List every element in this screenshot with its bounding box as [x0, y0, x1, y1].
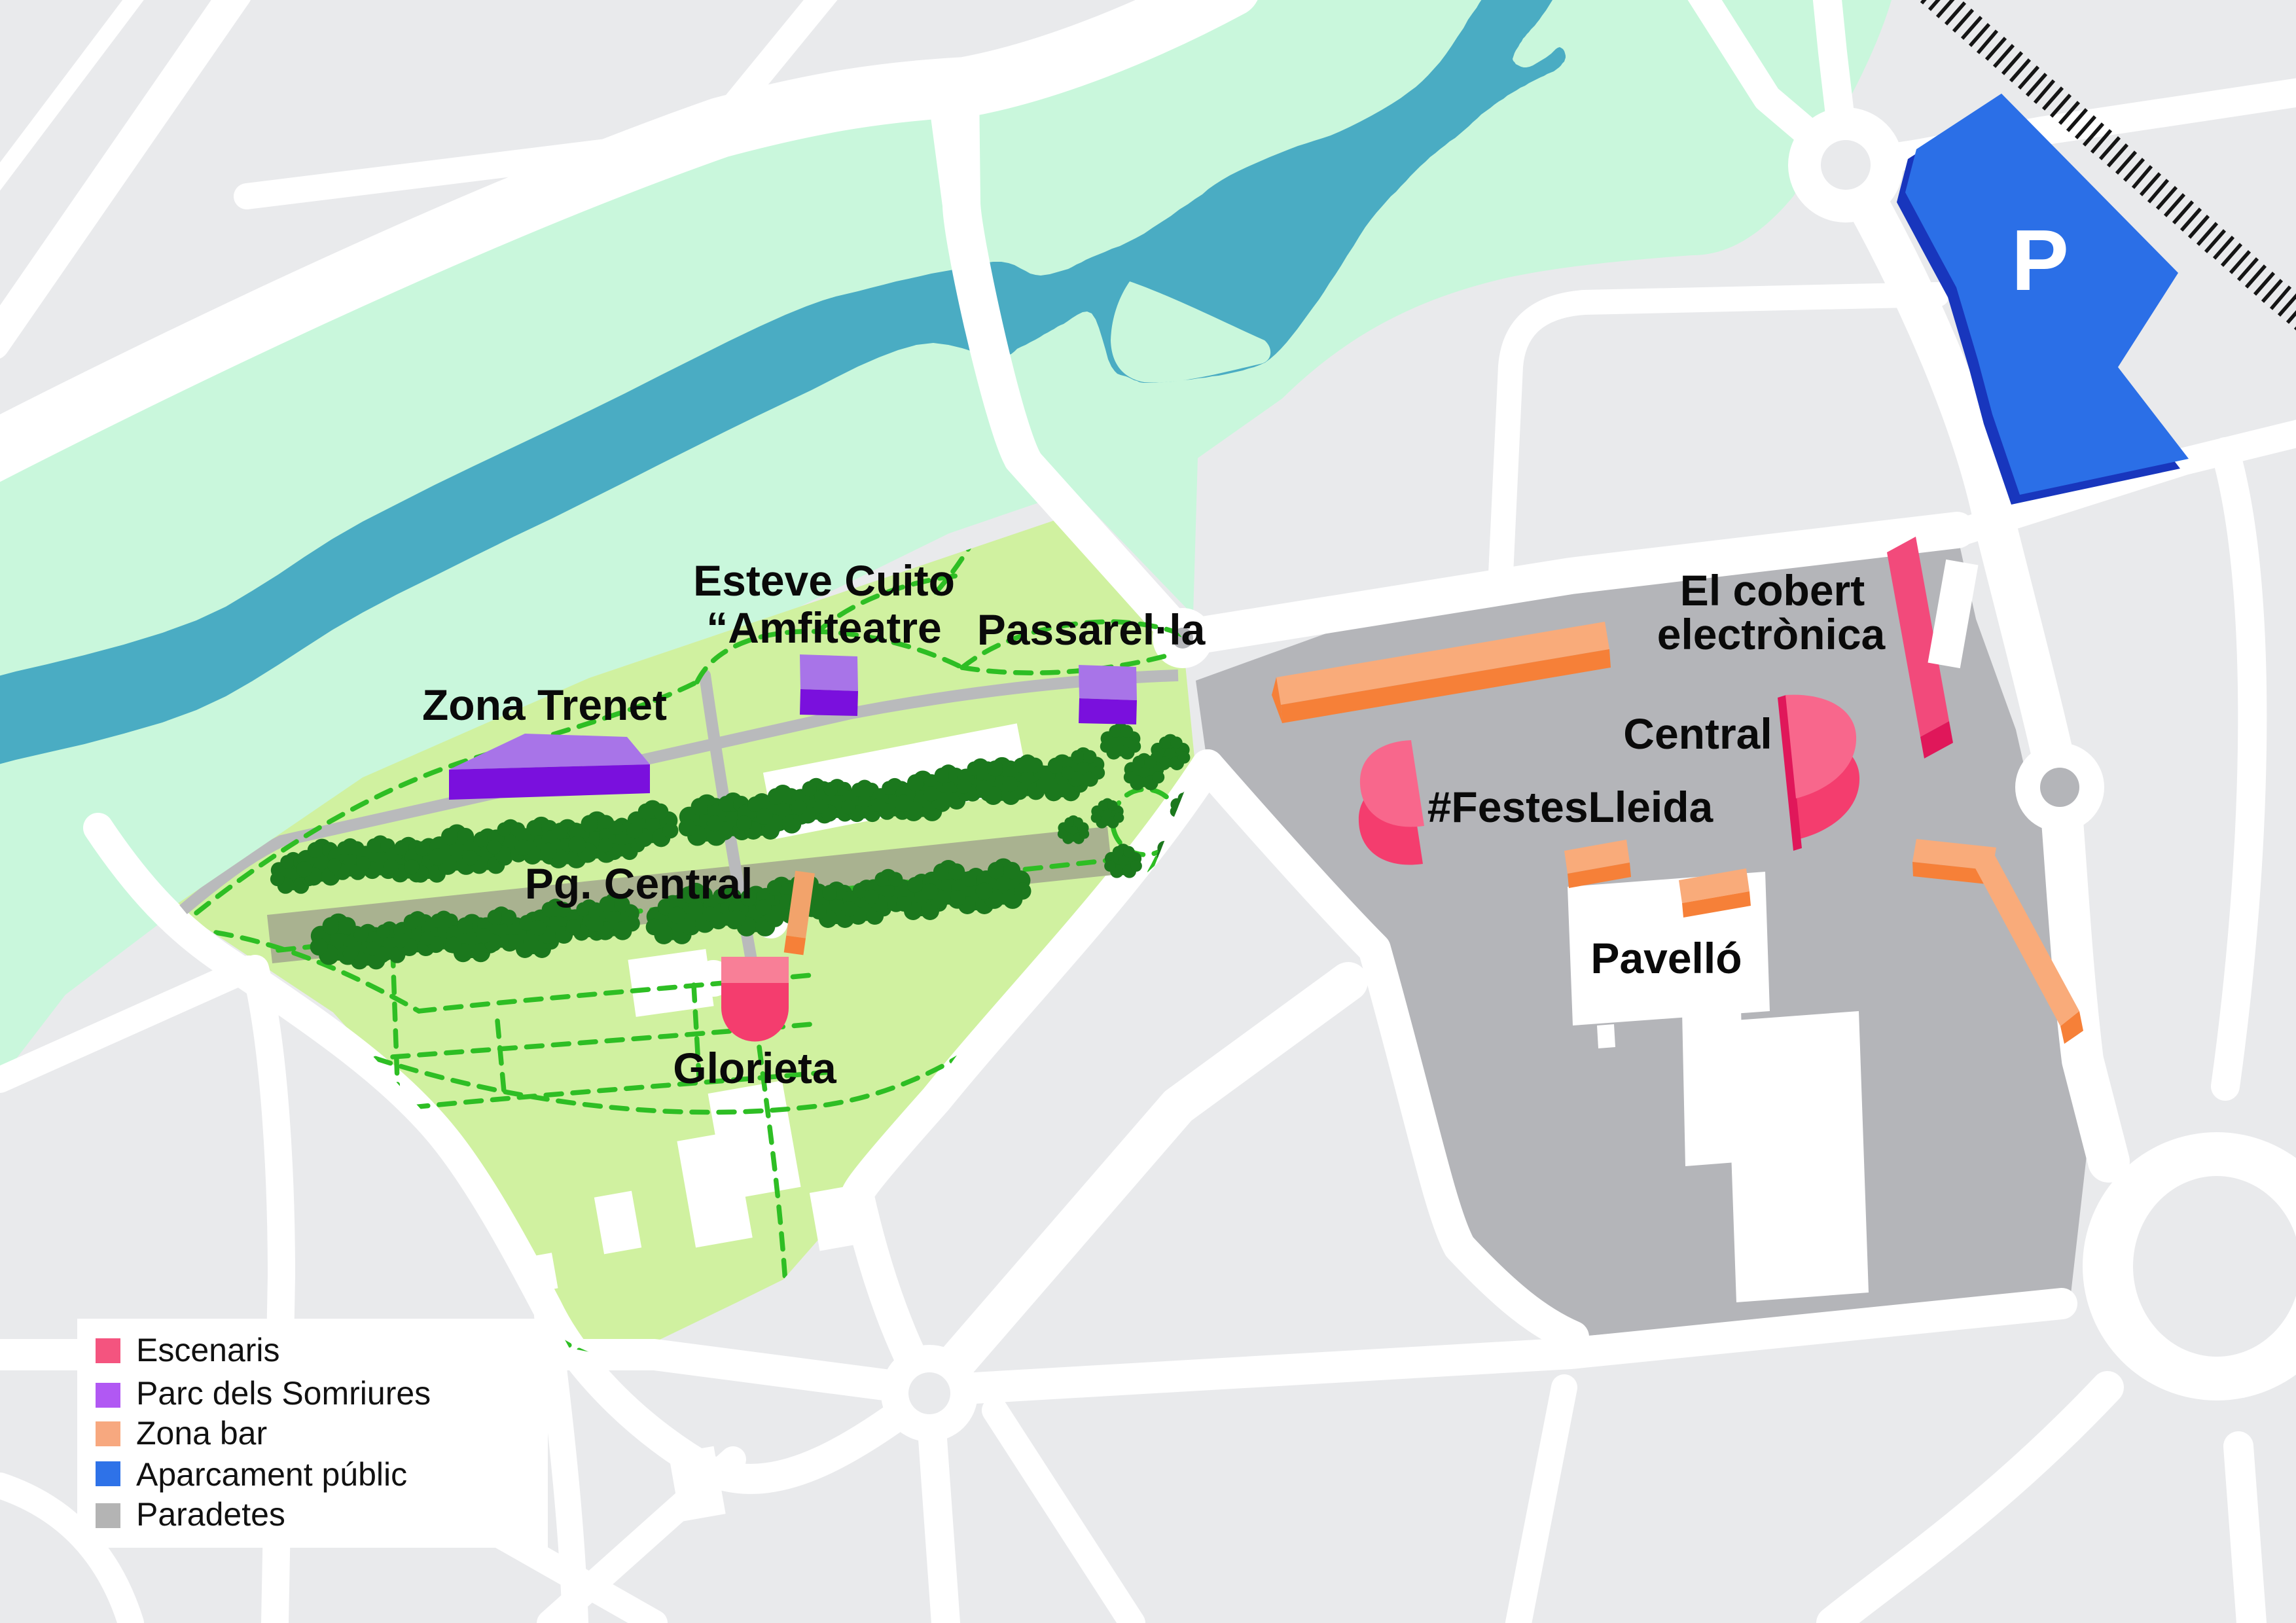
svg-text:electrònica: electrònica: [1657, 610, 1886, 658]
svg-text:Glorieta: Glorieta: [673, 1044, 837, 1092]
svg-text:P: P: [2011, 212, 2069, 308]
svg-text:Esteve Cuito: Esteve Cuito: [693, 556, 955, 605]
svg-text:Zona Trenet: Zona Trenet: [422, 681, 667, 729]
svg-text:“Amfiteatre: “Amfiteatre: [706, 603, 941, 652]
svg-text:Pg. Central: Pg. Central: [525, 859, 753, 908]
svg-text:Zona bar: Zona bar: [136, 1415, 267, 1452]
svg-text:Central: Central: [1623, 709, 1772, 758]
svg-text:#FestesLleida: #FestesLleida: [1427, 783, 1714, 831]
svg-text:Aparcament públic: Aparcament públic: [136, 1456, 407, 1493]
svg-text:El cobert: El cobert: [1680, 566, 1865, 615]
svg-text:Escenaris: Escenaris: [136, 1332, 280, 1368]
svg-text:Parc dels Somriures: Parc dels Somriures: [136, 1375, 431, 1412]
svg-text:Pavelló: Pavelló: [1590, 934, 1742, 982]
svg-text:Paradetes: Paradetes: [136, 1496, 285, 1533]
svg-text:Passarel·la: Passarel·la: [977, 605, 1206, 654]
